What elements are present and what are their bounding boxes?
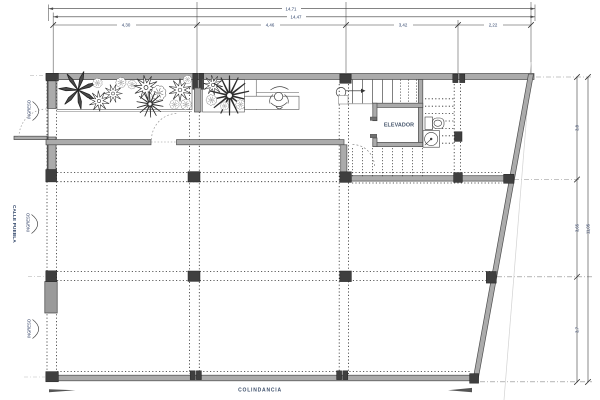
svg-text:4,30: 4,30: [122, 23, 131, 28]
svg-text:INGRESO: INGRESO: [27, 100, 32, 119]
svg-text:3,7: 3,7: [575, 326, 580, 332]
svg-text:3,8: 3,8: [575, 124, 580, 130]
svg-text:INGRESO: INGRESO: [26, 213, 31, 232]
svg-text:3,65: 3,65: [575, 223, 580, 232]
svg-text:CALLE PUEBLA: CALLE PUEBLA: [12, 205, 17, 243]
svg-text:COLINDANCIA: COLINDANCIA: [238, 387, 282, 393]
svg-text:ELEVADOR: ELEVADOR: [384, 122, 414, 128]
svg-text:INGRESO: INGRESO: [27, 319, 32, 338]
svg-text:14,47: 14,47: [291, 14, 303, 19]
svg-text:4,46: 4,46: [266, 23, 275, 28]
svg-text:11,05: 11,05: [586, 223, 591, 234]
svg-text:2,22: 2,22: [489, 23, 498, 28]
svg-text:3,42: 3,42: [399, 23, 408, 28]
svg-text:14,71: 14,71: [286, 6, 298, 11]
